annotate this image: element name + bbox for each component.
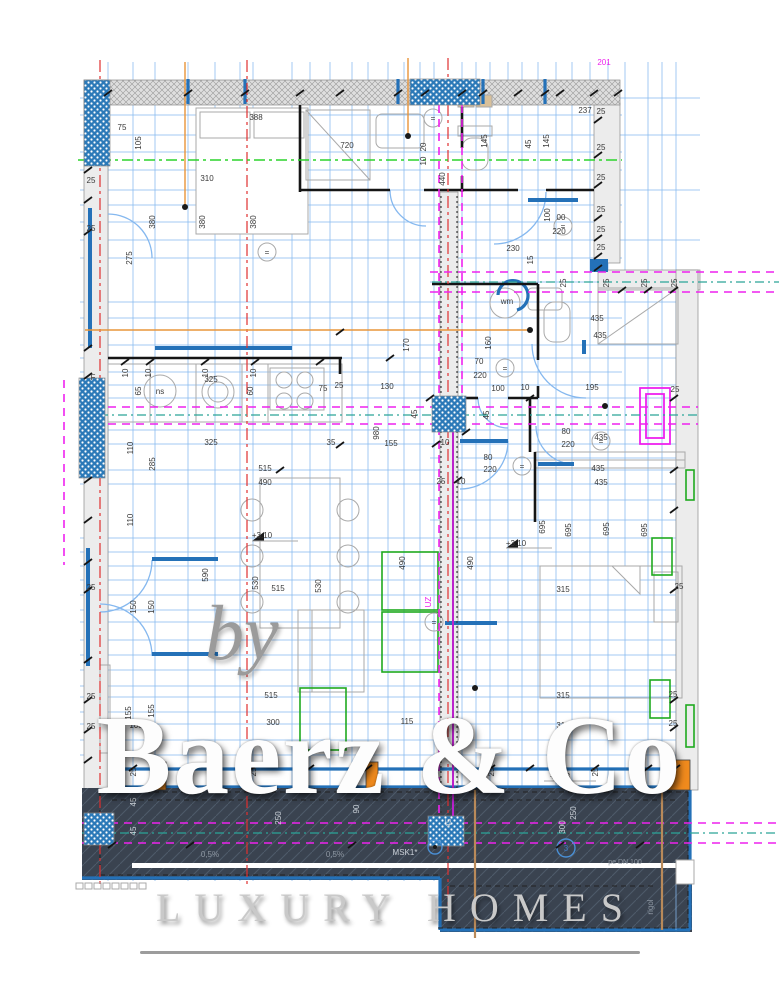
svg-text:155: 155 bbox=[147, 704, 156, 718]
svg-text:25: 25 bbox=[591, 767, 600, 776]
svg-text:237: 237 bbox=[578, 106, 592, 115]
svg-text:3: 3 bbox=[564, 844, 569, 853]
svg-text:25: 25 bbox=[670, 278, 679, 287]
svg-text:435: 435 bbox=[591, 464, 605, 473]
svg-text:=: = bbox=[431, 114, 436, 123]
svg-text:45: 45 bbox=[410, 409, 419, 418]
floorplan-page: 7510538831038038038027525257201451454523… bbox=[0, 0, 779, 1000]
svg-text:45: 45 bbox=[482, 410, 491, 419]
svg-text:00: 00 bbox=[557, 213, 566, 222]
svg-text:980: 980 bbox=[372, 426, 381, 440]
svg-text:315: 315 bbox=[556, 721, 570, 730]
svg-text:300: 300 bbox=[558, 820, 567, 834]
svg-text:25: 25 bbox=[249, 767, 258, 776]
svg-text:25: 25 bbox=[597, 243, 606, 252]
svg-text:230: 230 bbox=[506, 244, 520, 253]
svg-text:10: 10 bbox=[201, 368, 210, 377]
svg-text:695: 695 bbox=[538, 520, 547, 534]
svg-text:115: 115 bbox=[401, 717, 414, 726]
svg-text:10: 10 bbox=[144, 368, 153, 377]
svg-text:60: 60 bbox=[246, 386, 255, 395]
svg-text:45: 45 bbox=[444, 818, 453, 827]
svg-text:515: 515 bbox=[271, 584, 285, 593]
svg-text:380: 380 bbox=[198, 215, 207, 229]
svg-text:10: 10 bbox=[419, 156, 428, 165]
svg-text:25: 25 bbox=[437, 477, 446, 486]
svg-text:25: 25 bbox=[597, 173, 606, 182]
floor-plan-canvas: 7510538831038038038027525257201451454523… bbox=[0, 0, 779, 1000]
svg-text:25: 25 bbox=[669, 719, 678, 728]
svg-text:25: 25 bbox=[597, 205, 606, 214]
svg-text:10: 10 bbox=[121, 368, 130, 377]
svg-text:=: = bbox=[520, 462, 525, 471]
svg-text:45: 45 bbox=[524, 139, 533, 148]
svg-text:15: 15 bbox=[526, 255, 535, 264]
svg-text:25: 25 bbox=[87, 722, 96, 731]
svg-text:25: 25 bbox=[640, 278, 649, 287]
svg-text:490: 490 bbox=[258, 478, 272, 487]
svg-text:170: 170 bbox=[402, 338, 411, 352]
svg-text:285: 285 bbox=[148, 457, 157, 471]
svg-text:=: = bbox=[432, 618, 437, 627]
svg-text:10: 10 bbox=[521, 383, 530, 392]
svg-text:ns: ns bbox=[156, 387, 164, 396]
svg-text:250: 250 bbox=[569, 806, 578, 820]
svg-text:315: 315 bbox=[556, 585, 570, 594]
svg-text:100: 100 bbox=[491, 384, 505, 393]
watermark-underline bbox=[140, 951, 640, 954]
svg-text:530: 530 bbox=[251, 576, 260, 590]
svg-text:110: 110 bbox=[126, 441, 135, 454]
svg-text:UZ: UZ bbox=[424, 597, 433, 608]
svg-text:490: 490 bbox=[466, 556, 475, 570]
svg-text:25: 25 bbox=[597, 143, 606, 152]
svg-text:35: 35 bbox=[327, 438, 336, 447]
svg-text:380: 380 bbox=[249, 215, 258, 229]
svg-text:388: 388 bbox=[249, 113, 263, 122]
svg-text:380: 380 bbox=[148, 215, 157, 229]
svg-text:25: 25 bbox=[335, 381, 344, 390]
svg-text:160: 160 bbox=[484, 336, 493, 350]
svg-text:515: 515 bbox=[264, 691, 278, 700]
svg-text:435: 435 bbox=[594, 478, 608, 487]
svg-text:25: 25 bbox=[671, 385, 680, 394]
svg-text:100: 100 bbox=[543, 208, 552, 222]
svg-text:220: 220 bbox=[483, 465, 497, 474]
svg-text:25: 25 bbox=[87, 224, 96, 233]
svg-text:25: 25 bbox=[597, 225, 606, 234]
svg-text:45: 45 bbox=[129, 826, 138, 835]
svg-text:275: 275 bbox=[125, 251, 134, 265]
svg-text:530: 530 bbox=[314, 579, 323, 593]
svg-text:MSK1*: MSK1* bbox=[393, 848, 418, 857]
svg-text:25: 25 bbox=[487, 767, 496, 776]
svg-text:315: 315 bbox=[556, 691, 570, 700]
svg-text:+3.10: +3.10 bbox=[506, 539, 527, 548]
svg-text:590: 590 bbox=[201, 568, 210, 582]
svg-text:490: 490 bbox=[398, 556, 407, 570]
svg-text:25: 25 bbox=[597, 107, 606, 116]
svg-text:10: 10 bbox=[441, 438, 450, 447]
svg-text:130: 130 bbox=[380, 382, 394, 391]
svg-text:325: 325 bbox=[204, 438, 218, 447]
svg-text:150: 150 bbox=[147, 600, 156, 614]
svg-text:695: 695 bbox=[602, 522, 611, 536]
svg-text:300: 300 bbox=[266, 718, 280, 727]
svg-text:250: 250 bbox=[274, 811, 283, 825]
svg-text:75: 75 bbox=[319, 384, 328, 393]
svg-text:25: 25 bbox=[602, 278, 611, 287]
svg-text:155: 155 bbox=[124, 706, 133, 720]
svg-text:25: 25 bbox=[675, 582, 684, 591]
svg-text:=: = bbox=[599, 437, 604, 446]
svg-text:150: 150 bbox=[129, 600, 138, 614]
svg-text:435: 435 bbox=[593, 331, 607, 340]
svg-text:145: 145 bbox=[542, 134, 551, 148]
svg-text:75: 75 bbox=[118, 123, 127, 132]
svg-text:100: 100 bbox=[129, 721, 143, 730]
svg-text:10: 10 bbox=[249, 368, 258, 377]
svg-text:201: 201 bbox=[597, 58, 611, 67]
svg-text:105: 105 bbox=[134, 136, 143, 150]
svg-text:25: 25 bbox=[87, 583, 96, 592]
svg-text:=: = bbox=[265, 248, 270, 257]
svg-text:440: 440 bbox=[438, 172, 447, 186]
svg-text:0,5%: 0,5% bbox=[326, 850, 344, 859]
svg-text:145: 145 bbox=[480, 134, 489, 148]
svg-text:80: 80 bbox=[562, 427, 571, 436]
svg-text:25: 25 bbox=[87, 692, 96, 701]
svg-text:220: 220 bbox=[561, 440, 575, 449]
svg-text:155: 155 bbox=[384, 439, 398, 448]
svg-text:wm: wm bbox=[500, 297, 514, 306]
svg-text:25: 25 bbox=[87, 176, 96, 185]
svg-text:310: 310 bbox=[200, 174, 214, 183]
svg-text:80: 80 bbox=[484, 453, 493, 462]
svg-text:rigol: rigol bbox=[646, 899, 655, 914]
svg-text:45: 45 bbox=[129, 797, 138, 806]
svg-text:=: = bbox=[561, 222, 566, 231]
svg-text:0,5%: 0,5% bbox=[201, 850, 219, 859]
svg-text:515: 515 bbox=[258, 464, 272, 473]
svg-text:110: 110 bbox=[126, 513, 135, 526]
svg-text:=: = bbox=[503, 364, 508, 373]
svg-text:195: 195 bbox=[585, 383, 599, 392]
svg-text:65: 65 bbox=[134, 386, 143, 395]
svg-text:+3.10: +3.10 bbox=[252, 531, 273, 540]
svg-text:F: F bbox=[91, 373, 96, 382]
svg-text:+3.08: +3.08 bbox=[550, 772, 571, 781]
svg-text:720: 720 bbox=[340, 141, 354, 150]
svg-text:70: 70 bbox=[475, 357, 484, 366]
svg-text:25: 25 bbox=[129, 767, 138, 776]
svg-text:25: 25 bbox=[669, 690, 678, 699]
svg-text:435: 435 bbox=[590, 314, 604, 323]
svg-text:25: 25 bbox=[559, 278, 568, 287]
svg-text:90: 90 bbox=[352, 804, 361, 813]
svg-text:695: 695 bbox=[564, 523, 573, 537]
svg-text:pe DN 100: pe DN 100 bbox=[608, 859, 642, 866]
svg-text:695: 695 bbox=[640, 523, 649, 537]
svg-text:10: 10 bbox=[457, 477, 466, 486]
svg-text:220: 220 bbox=[473, 371, 487, 380]
svg-text:20: 20 bbox=[419, 142, 428, 151]
